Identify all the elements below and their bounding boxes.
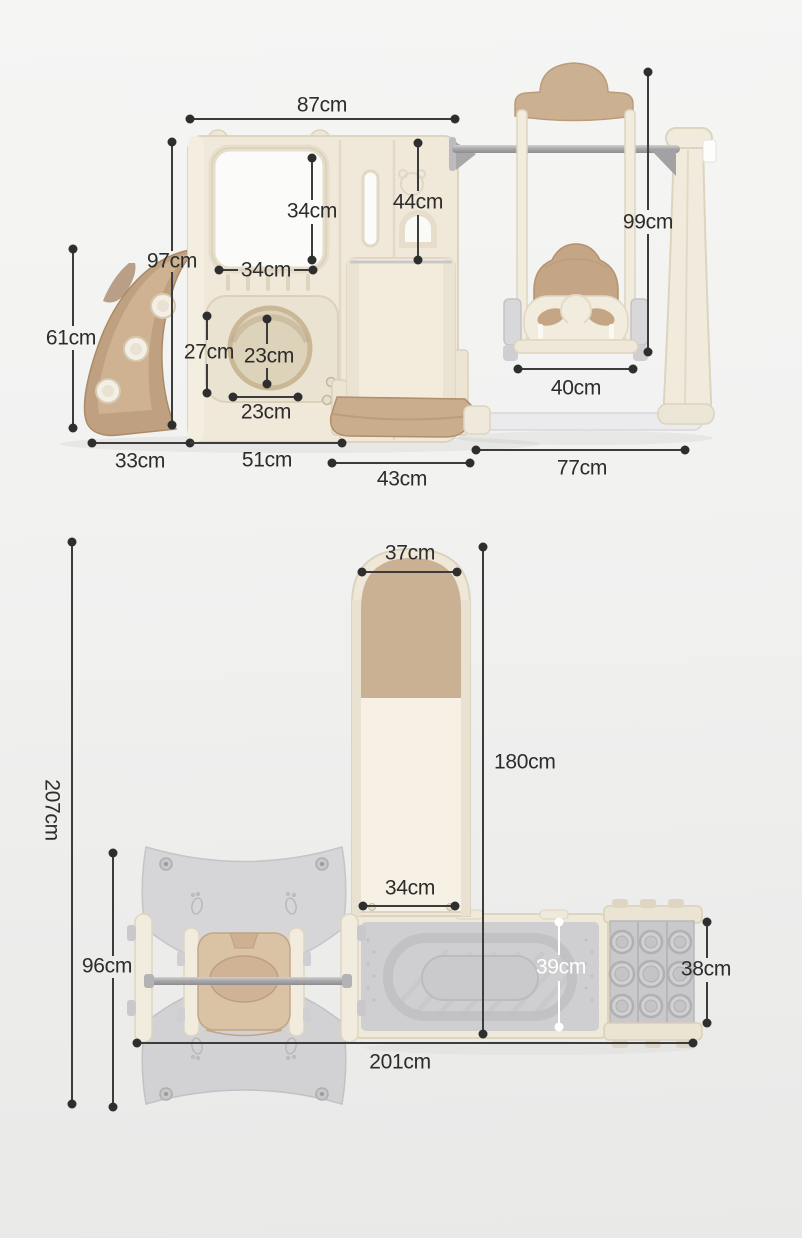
dim-label-44cm: 44cm [393, 192, 443, 213]
dim-label-207cm: 207cm [42, 779, 63, 841]
dim-label-51cm: 51cm [242, 450, 292, 471]
dim-label-hole-w-23cm: 23cm [241, 402, 291, 423]
dim-label-window-34cm: 34cm [287, 201, 337, 222]
dim-label-77cm: 77cm [557, 458, 607, 479]
dim-label-61cm: 61cm [46, 328, 96, 349]
dim-label-96cm: 96cm [82, 956, 132, 977]
dim-label-34cm-top: 34cm [385, 878, 435, 899]
dim-label-43cm: 43cm [377, 469, 427, 490]
dim-label-39cm: 39cm [536, 957, 586, 978]
dim-label-180cm: 180cm [494, 752, 556, 773]
dim-label-97cm: 97cm [147, 251, 197, 272]
dim-label-27cm: 27cm [184, 342, 234, 363]
dim-label-window-w-34cm: 34cm [241, 260, 291, 281]
dimension-annotations: 87cm 97cm 61cm 34cm 34cm 44cm [0, 0, 802, 1238]
dim-label-87cm: 87cm [297, 95, 347, 116]
dim-label-37cm: 37cm [385, 543, 435, 564]
dim-label-201cm: 201cm [369, 1052, 431, 1073]
dim-label-40cm: 40cm [551, 378, 601, 399]
dim-label-33cm: 33cm [115, 451, 165, 472]
dim-label-hole-h-23cm: 23cm [244, 346, 294, 367]
dim-label-38cm: 38cm [681, 959, 731, 980]
product-dimension-diagram: 87cm 97cm 61cm 34cm 34cm 44cm [0, 0, 802, 1238]
dim-label-99cm: 99cm [623, 212, 673, 233]
